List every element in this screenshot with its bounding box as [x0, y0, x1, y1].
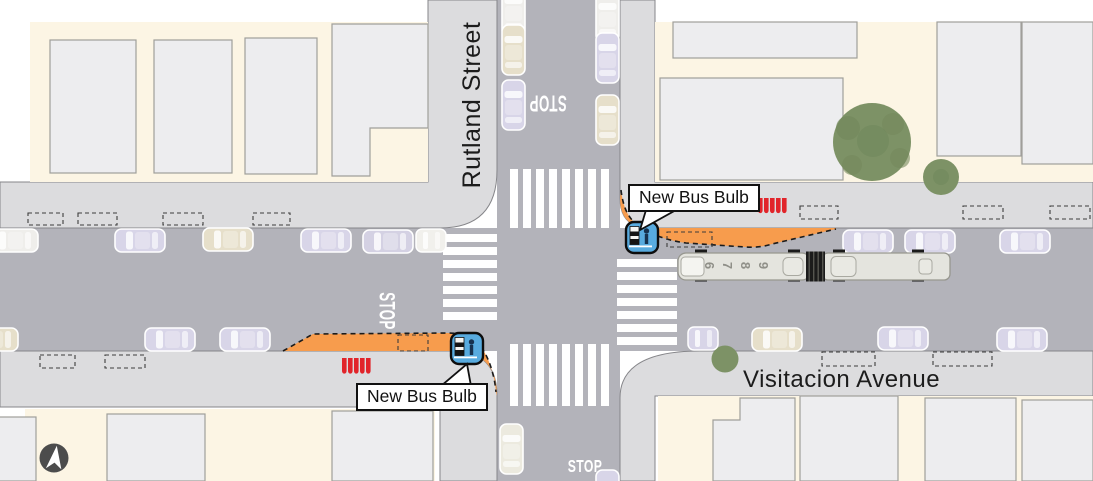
parked-car: [843, 230, 893, 253]
parked-car: [502, 25, 525, 75]
parked-car: [500, 424, 523, 474]
bus-roof-digit: 7: [720, 262, 735, 269]
parked-car: [363, 230, 413, 253]
parked-car: [203, 228, 253, 251]
tree-icon: [833, 103, 911, 181]
building: [154, 40, 232, 173]
stop-pavement-marking-north: STOP: [529, 89, 566, 116]
callout-new-bus-bulb-southwest: New Bus Bulb: [356, 383, 488, 411]
building: [107, 414, 205, 481]
building: [50, 40, 136, 173]
building: [660, 78, 843, 180]
parked-car: [0, 328, 18, 351]
parked-car: [145, 328, 195, 351]
building: [937, 22, 1021, 156]
building: [800, 396, 898, 481]
bus-roof-digit: 9: [756, 262, 771, 269]
parked-car: [416, 229, 446, 252]
building: [332, 411, 433, 481]
bus-bulb-plan-map: Rutland Street Visitacion Avenue STOP ST…: [0, 0, 1093, 481]
stop-pavement-marking-west: STOP: [373, 292, 399, 329]
street-label-rutland: Rutland Street: [458, 15, 486, 195]
bus-windshield: [681, 257, 704, 276]
building: [0, 417, 36, 481]
parked-car: [301, 229, 351, 252]
parked-car: [688, 327, 718, 350]
stop-pavement-marking-south: STOP: [568, 457, 603, 478]
parked-car: [752, 328, 802, 351]
building: [245, 38, 317, 174]
bus-roof-digit: 8: [738, 262, 753, 269]
parked-car: [220, 328, 270, 351]
parked-car: [0, 229, 38, 252]
callout-new-bus-bulb-northeast: New Bus Bulb: [628, 184, 760, 212]
parked-car: [1000, 230, 1050, 253]
building: [1022, 22, 1093, 164]
tree-icon: [923, 159, 959, 195]
transit-shelter-icon: [758, 198, 787, 213]
parked-car: [596, 33, 619, 83]
building: [1022, 400, 1093, 481]
bus-stop-icon: [451, 333, 483, 364]
street-label-visitacion: Visitacion Avenue: [743, 366, 940, 394]
building: [673, 22, 857, 58]
north-arrow-icon: [40, 444, 69, 473]
bus-roof-digit: 6: [702, 262, 717, 269]
parked-car: [115, 229, 165, 252]
parked-car: [596, 95, 619, 145]
parked-car: [878, 327, 928, 350]
intersection-basemap: [0, 0, 1093, 481]
articulated-bus: [678, 250, 950, 282]
transit-shelter-icon: [342, 358, 371, 374]
parked-car: [997, 328, 1047, 351]
building: [925, 398, 1016, 481]
parked-car: [502, 80, 525, 130]
